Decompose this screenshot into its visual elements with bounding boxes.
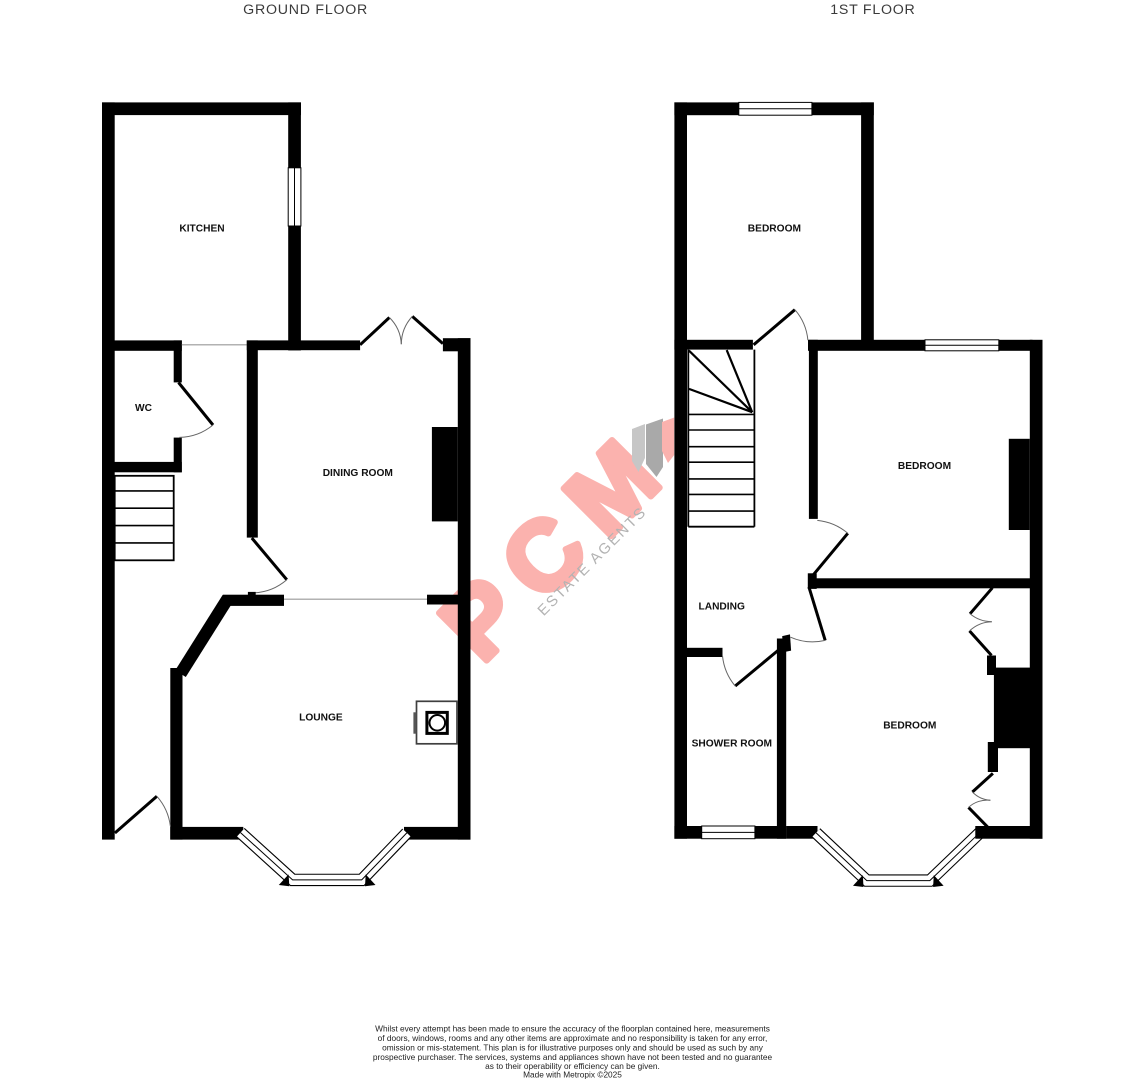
svg-text:1ST FLOOR: 1ST FLOOR: [830, 2, 915, 18]
svg-text:LOUNGE: LOUNGE: [299, 712, 343, 723]
svg-text:KITCHEN: KITCHEN: [179, 224, 224, 235]
svg-text:SHOWER ROOM: SHOWER ROOM: [692, 738, 772, 749]
svg-text:BEDROOM: BEDROOM: [748, 224, 801, 235]
svg-text:LANDING: LANDING: [698, 602, 744, 613]
svg-text:BEDROOM: BEDROOM: [898, 461, 951, 472]
svg-text:GROUND FLOOR: GROUND FLOOR: [243, 2, 368, 18]
svg-text:BEDROOM: BEDROOM: [883, 721, 936, 732]
svg-text:Made with Metropix ©2025: Made with Metropix ©2025: [523, 1070, 622, 1080]
svg-text:WC: WC: [135, 403, 153, 414]
svg-text:DINING ROOM: DINING ROOM: [323, 468, 393, 479]
